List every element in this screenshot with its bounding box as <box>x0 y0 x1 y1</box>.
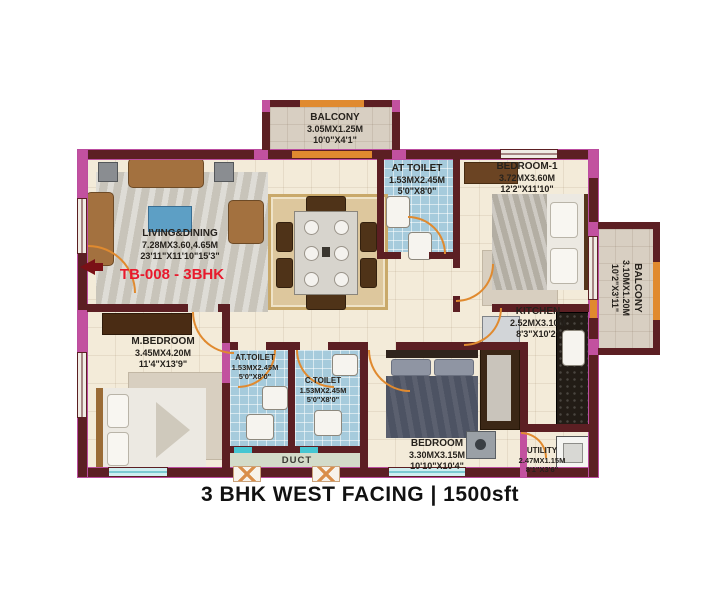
table-centerpiece <box>322 247 330 257</box>
mbedroom-bed <box>96 388 206 472</box>
bed-pillow <box>434 359 474 376</box>
wall-toilet-divider <box>288 350 295 450</box>
bed-pillow <box>550 248 578 284</box>
room-dim-imperial: 10'10"X10'4" <box>409 461 465 472</box>
wall-accent <box>78 150 87 198</box>
wall-toilets-top <box>266 342 300 350</box>
plan-title: 3 BHK WEST FACING | 1500sft <box>201 483 519 507</box>
room-dim-metric: 3.45MX4.20M <box>131 348 194 359</box>
bed-pillow <box>107 394 129 428</box>
bedroom1-bed <box>492 194 592 290</box>
stool <box>466 431 496 459</box>
room-label-kitchen: KITCHEN 2.52MX3.10M 8'3"X10'2" <box>510 306 566 340</box>
room-label-c-toilet: C.TOILET 1.53MX2.45M 5'0"X8'0" <box>300 376 347 404</box>
wall-accent <box>262 100 270 112</box>
room-label-at-toilet-top: AT TOILET 1.53MX2.45M 5'0"X8'0" <box>389 163 445 197</box>
room-label-at-toilet-bottom: AT.TOILET 1.53MX2.45M 5'0"X8'0" <box>232 353 279 381</box>
wall-accent <box>392 150 406 159</box>
room-label-duct: DUCT <box>282 455 312 466</box>
window <box>500 149 558 159</box>
wall-toilets-right <box>360 342 368 477</box>
room-dim-metric: 3.72MX3.60M <box>496 173 557 184</box>
wall-utility-top <box>520 424 598 432</box>
dining-chair <box>360 222 377 252</box>
plate <box>304 220 319 235</box>
entry-arrow-icon <box>80 259 95 275</box>
room-dim-imperial: 23'11"X11'10"15'3" <box>140 251 219 262</box>
room-dim-metric: 3.30MX3.15M <box>409 450 465 461</box>
room-name: BALCONY <box>631 260 643 316</box>
stool-detail <box>475 439 486 450</box>
dining-chair <box>306 293 346 310</box>
room-name: AT TOILET <box>389 163 445 175</box>
wall-mbedroom-top <box>218 304 230 312</box>
side-table-right <box>214 162 234 182</box>
room-dim-metric: 1.53MX2.45M <box>232 363 279 372</box>
room-label-balcony-right: BALCONY 3.10MX1.20M 10'2"X3'11" <box>609 260 643 316</box>
room-name: LIVING&DINING <box>140 228 219 240</box>
wall-toilet-top-bottom <box>377 252 401 259</box>
room-name: UTILITY <box>519 446 566 456</box>
entry-arrow-base <box>95 263 103 271</box>
room-label-bedroom: BEDROOM 3.30MX3.15M 10'10"X10'4" <box>409 438 465 472</box>
wall-accent <box>589 150 598 178</box>
wall-bedroom1-left <box>453 159 460 268</box>
pipe-mark <box>300 447 318 453</box>
room-dim-imperial: 10'2"X3'11" <box>609 260 620 316</box>
duct-hatch <box>312 466 340 482</box>
dining-chair <box>360 258 377 288</box>
pipe-mark <box>234 447 252 453</box>
balcony-window <box>653 262 660 320</box>
room-dim-imperial: 5'0"X8'0" <box>232 372 279 381</box>
wall-bedroom-right <box>520 350 528 432</box>
wall-accent <box>78 310 87 352</box>
window <box>108 467 168 477</box>
room-name: BALCONY <box>307 112 363 124</box>
room-dim-imperial: 12'2"X11'10" <box>496 184 557 195</box>
balcony-window <box>300 100 364 107</box>
armchair <box>228 200 264 244</box>
bed-blanket-fold <box>156 402 190 458</box>
balcony-door-sill <box>292 151 372 158</box>
room-dim-metric: 1.53MX2.45M <box>389 175 445 186</box>
washbasin <box>386 196 410 228</box>
wall-accent <box>589 339 598 355</box>
room-name: AT.TOILET <box>232 353 279 363</box>
room-name: KITCHEN <box>510 306 566 318</box>
plate <box>334 246 349 261</box>
wall-accent <box>392 100 400 112</box>
room-dim-metric: 7.28MX3.60,4.65M <box>140 240 219 251</box>
room-dim-metric: 3.10MX1.20M <box>620 260 631 316</box>
plate <box>304 272 319 287</box>
room-dim-metric: 1.53MX2.45M <box>300 386 347 395</box>
wardrobe-panel <box>487 355 511 421</box>
room-label-living-dining: LIVING&DINING 7.28MX3.60,4.65M 23'11"X11… <box>140 228 219 262</box>
room-dim-imperial: 11'4"X13'9" <box>131 359 194 370</box>
side-table-left <box>98 162 118 182</box>
plate <box>334 220 349 235</box>
wall-bedroom-top <box>396 342 528 350</box>
bed-headboard <box>96 388 103 472</box>
wall-balcony-right-bottom <box>598 348 660 355</box>
wardrobe <box>480 348 520 430</box>
window <box>77 198 87 254</box>
plate <box>334 272 349 287</box>
room-dim-metric: 2.52MX3.10M <box>510 318 566 329</box>
bed-pillow <box>107 432 129 466</box>
washing-machine-door <box>563 443 583 463</box>
room-dim-imperial: 5'0"X8'0" <box>389 186 445 197</box>
room-label-balcony-top: BALCONY 3.05MX1.25M 10'0"X4'1" <box>307 112 363 146</box>
room-dim-metric: 2.47MX1.15M <box>519 456 566 465</box>
wall-balcony-right-top <box>598 222 660 229</box>
wall-accent <box>254 150 268 159</box>
room-dim-imperial: 8'1"X3'6" <box>519 465 566 474</box>
toilet-wc <box>246 414 274 440</box>
dining-chair <box>276 258 293 288</box>
room-dim-metric: 3.05MX1.25M <box>307 124 363 135</box>
room-label-bedroom1: BEDROOM-1 3.72MX3.60M 12'2"X11'10" <box>496 161 557 195</box>
room-dim-imperial: 5'0"X8'0" <box>300 395 347 404</box>
bed-pillow <box>550 202 578 238</box>
plan-code: TB-008 - 3BHK <box>120 266 224 283</box>
room-name: M.BEDROOM <box>131 336 194 348</box>
room-label-mbedroom: M.BEDROOM 3.45MX4.20M 11'4"X13'9" <box>131 336 194 370</box>
window <box>588 236 598 300</box>
room-dim-imperial: 10'0"X4'1" <box>307 135 363 146</box>
bed-blanket <box>492 194 547 290</box>
plate <box>304 246 319 261</box>
dining-chair <box>276 222 293 252</box>
wall-mbedroom-top <box>87 304 188 312</box>
room-name: BEDROOM-1 <box>496 161 557 173</box>
sofa-top <box>128 158 204 188</box>
room-name: C.TOILET <box>300 376 347 386</box>
mbedroom-dresser <box>102 313 192 335</box>
room-dim-imperial: 8'3"X10'2" <box>510 329 566 340</box>
window <box>77 352 87 418</box>
wall-toilet-top-left <box>377 159 384 259</box>
washbasin <box>262 386 288 410</box>
floor-plan: BALCONY 3.05MX1.25M 10'0"X4'1" AT TOILET… <box>0 0 719 600</box>
room-name: BEDROOM <box>409 438 465 450</box>
washbasin <box>332 354 358 376</box>
room-label-utility: UTILITY 2.47MX1.15M 8'1"X3'6" <box>519 446 566 474</box>
toilet-wc <box>314 410 342 436</box>
duct-hatch <box>233 466 261 482</box>
